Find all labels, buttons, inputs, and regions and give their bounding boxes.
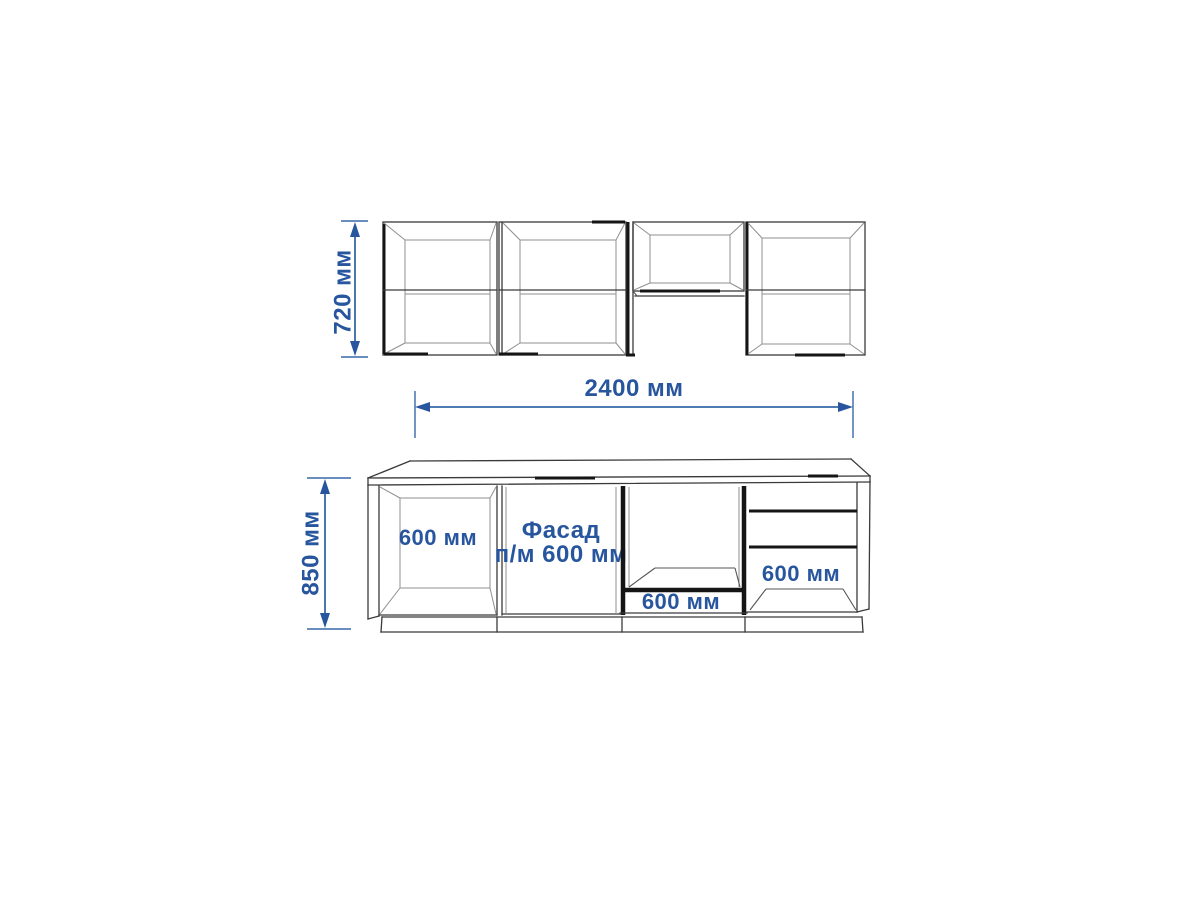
wall-cabinet-4 bbox=[746, 222, 865, 355]
wall-cabinet-2 bbox=[499, 222, 626, 355]
kitchen-layout-diagram: 720 мм 2400 мм bbox=[0, 0, 1201, 900]
height-dimension-720: 720 мм bbox=[330, 221, 369, 357]
height-dimension-850: 850 мм bbox=[298, 478, 352, 629]
arrow-down-icon bbox=[320, 613, 330, 628]
countertop bbox=[368, 459, 870, 485]
upper-cabinets-run bbox=[383, 222, 865, 355]
drawer-cabinet: 600 мм bbox=[747, 482, 870, 612]
upper-height-label: 720 мм bbox=[330, 249, 357, 334]
width-dimension-2400: 2400 мм bbox=[415, 375, 853, 438]
arrow-up-icon bbox=[350, 222, 360, 237]
hood-wall-cabinet bbox=[633, 222, 744, 296]
oven-width-label: 600 мм bbox=[642, 589, 720, 614]
facade-label-line1: Фасад bbox=[522, 517, 601, 544]
hood-divider-panel bbox=[626, 222, 635, 355]
base-cabinets-run: 600 мм Фасад п/м 600 мм 600 мм bbox=[368, 482, 870, 632]
base-height-label: 850 мм bbox=[298, 510, 325, 595]
drawer-cabinet-width-label: 600 мм bbox=[762, 561, 840, 586]
facade-label-line2: п/м 600 мм bbox=[495, 541, 628, 568]
arrow-down-icon bbox=[350, 341, 360, 356]
arrow-left-icon bbox=[415, 402, 430, 412]
arrow-right-icon bbox=[838, 402, 853, 412]
base-cabinet-facade: Фасад п/м 600 мм bbox=[495, 487, 628, 614]
arrow-up-icon bbox=[320, 479, 330, 494]
wall-cabinet-1 bbox=[383, 222, 497, 355]
plinth bbox=[381, 617, 863, 632]
base-cabinet-open: 600 мм bbox=[368, 485, 497, 619]
width-label: 2400 мм bbox=[584, 375, 683, 402]
drawing-canvas: 720 мм 2400 мм bbox=[0, 0, 1201, 900]
open-cabinet-width-label: 600 мм bbox=[399, 525, 477, 550]
oven-cabinet: 600 мм bbox=[620, 486, 747, 615]
